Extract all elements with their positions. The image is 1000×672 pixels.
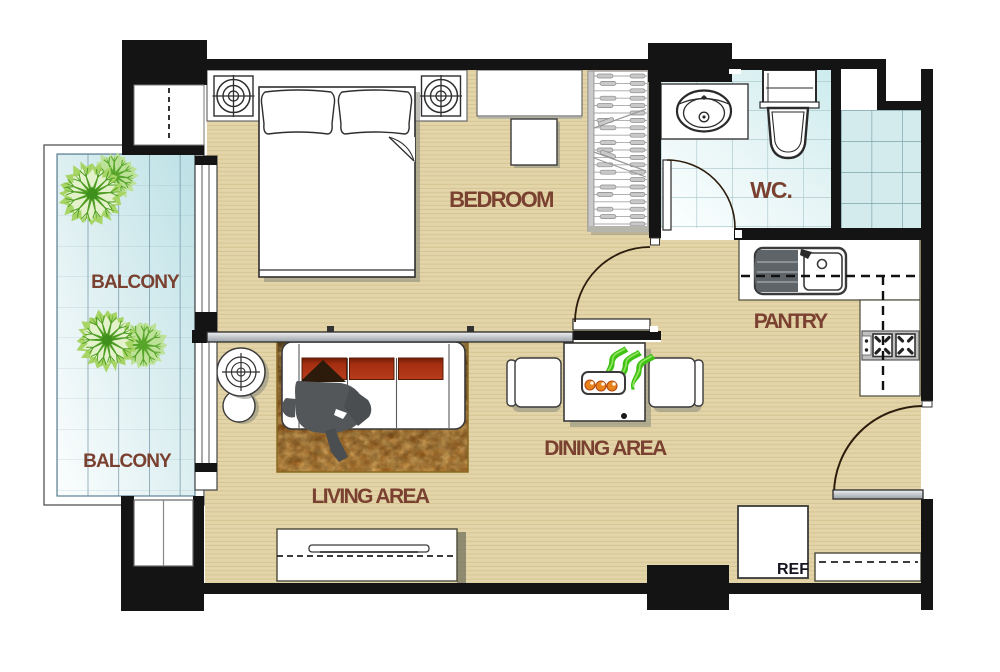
svg-text:PANTRY: PANTRY	[754, 310, 828, 333]
svg-text:BALCONY: BALCONY	[91, 272, 180, 293]
svg-text:WC.: WC.	[750, 177, 792, 203]
svg-text:DINING AREA: DINING AREA	[544, 437, 667, 460]
svg-text:REF: REF	[777, 561, 809, 578]
svg-text:LIVING AREA: LIVING AREA	[312, 485, 430, 508]
svg-text:BALCONY: BALCONY	[83, 451, 172, 472]
svg-text:BEDROOM: BEDROOM	[449, 187, 553, 212]
